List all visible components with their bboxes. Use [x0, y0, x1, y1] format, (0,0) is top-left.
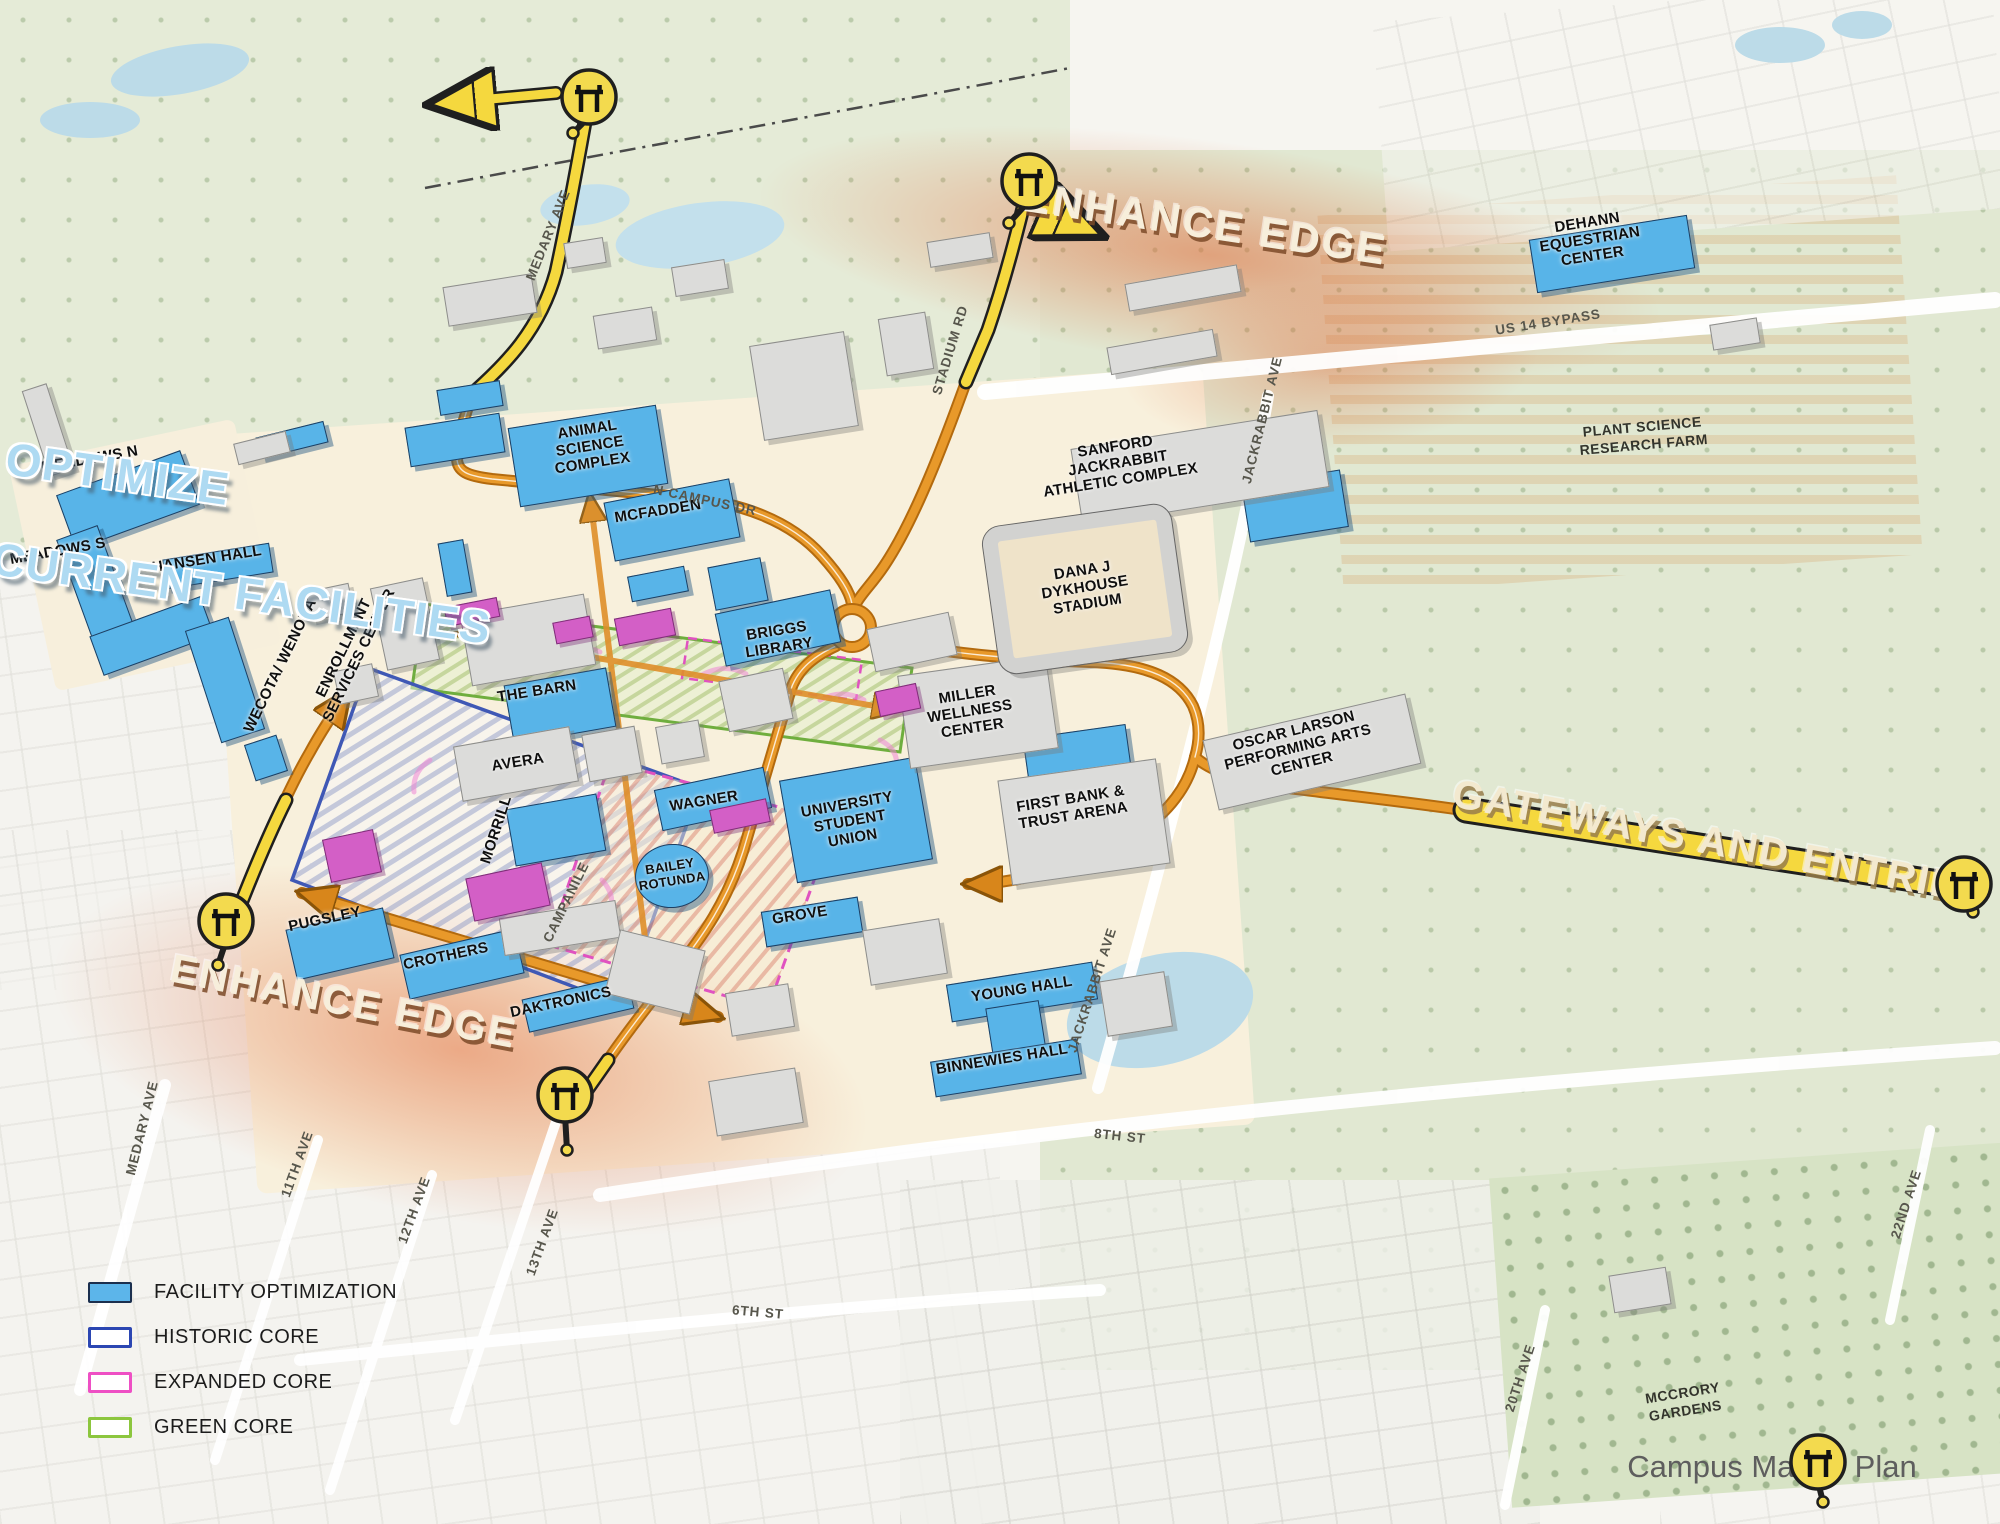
gateway-icon	[1002, 154, 1056, 229]
legend-swatch-outline-magenta	[88, 1372, 132, 1393]
legend: FACILITY OPTIMIZATIONHISTORIC COREEXPAND…	[88, 1270, 397, 1450]
gateway-icon	[1791, 1435, 1845, 1508]
gateway-icon	[199, 894, 253, 971]
gateway-icon	[1937, 857, 1991, 918]
legend-item: FACILITY OPTIMIZATION	[88, 1270, 397, 1315]
gateway-icon	[538, 1068, 592, 1156]
legend-label: GREEN CORE	[154, 1416, 293, 1439]
legend-item: GREEN CORE	[88, 1405, 397, 1450]
legend-label: HISTORIC CORE	[154, 1326, 319, 1349]
legend-item: EXPANDED CORE	[88, 1360, 397, 1405]
legend-swatch-outline-green	[88, 1417, 132, 1438]
legend-label: EXPANDED CORE	[154, 1371, 332, 1394]
legend-label: FACILITY OPTIMIZATION	[154, 1281, 397, 1304]
legend-swatch-fill-blue	[88, 1282, 132, 1303]
campus-master-plan-map: MEADOWS NMEADOWS SHANSEN HALLWECOTA/ WEN…	[0, 0, 2000, 1524]
legend-item: HISTORIC CORE	[88, 1315, 397, 1360]
legend-swatch-outline-blue	[88, 1327, 132, 1348]
gateway-icon	[562, 70, 616, 139]
